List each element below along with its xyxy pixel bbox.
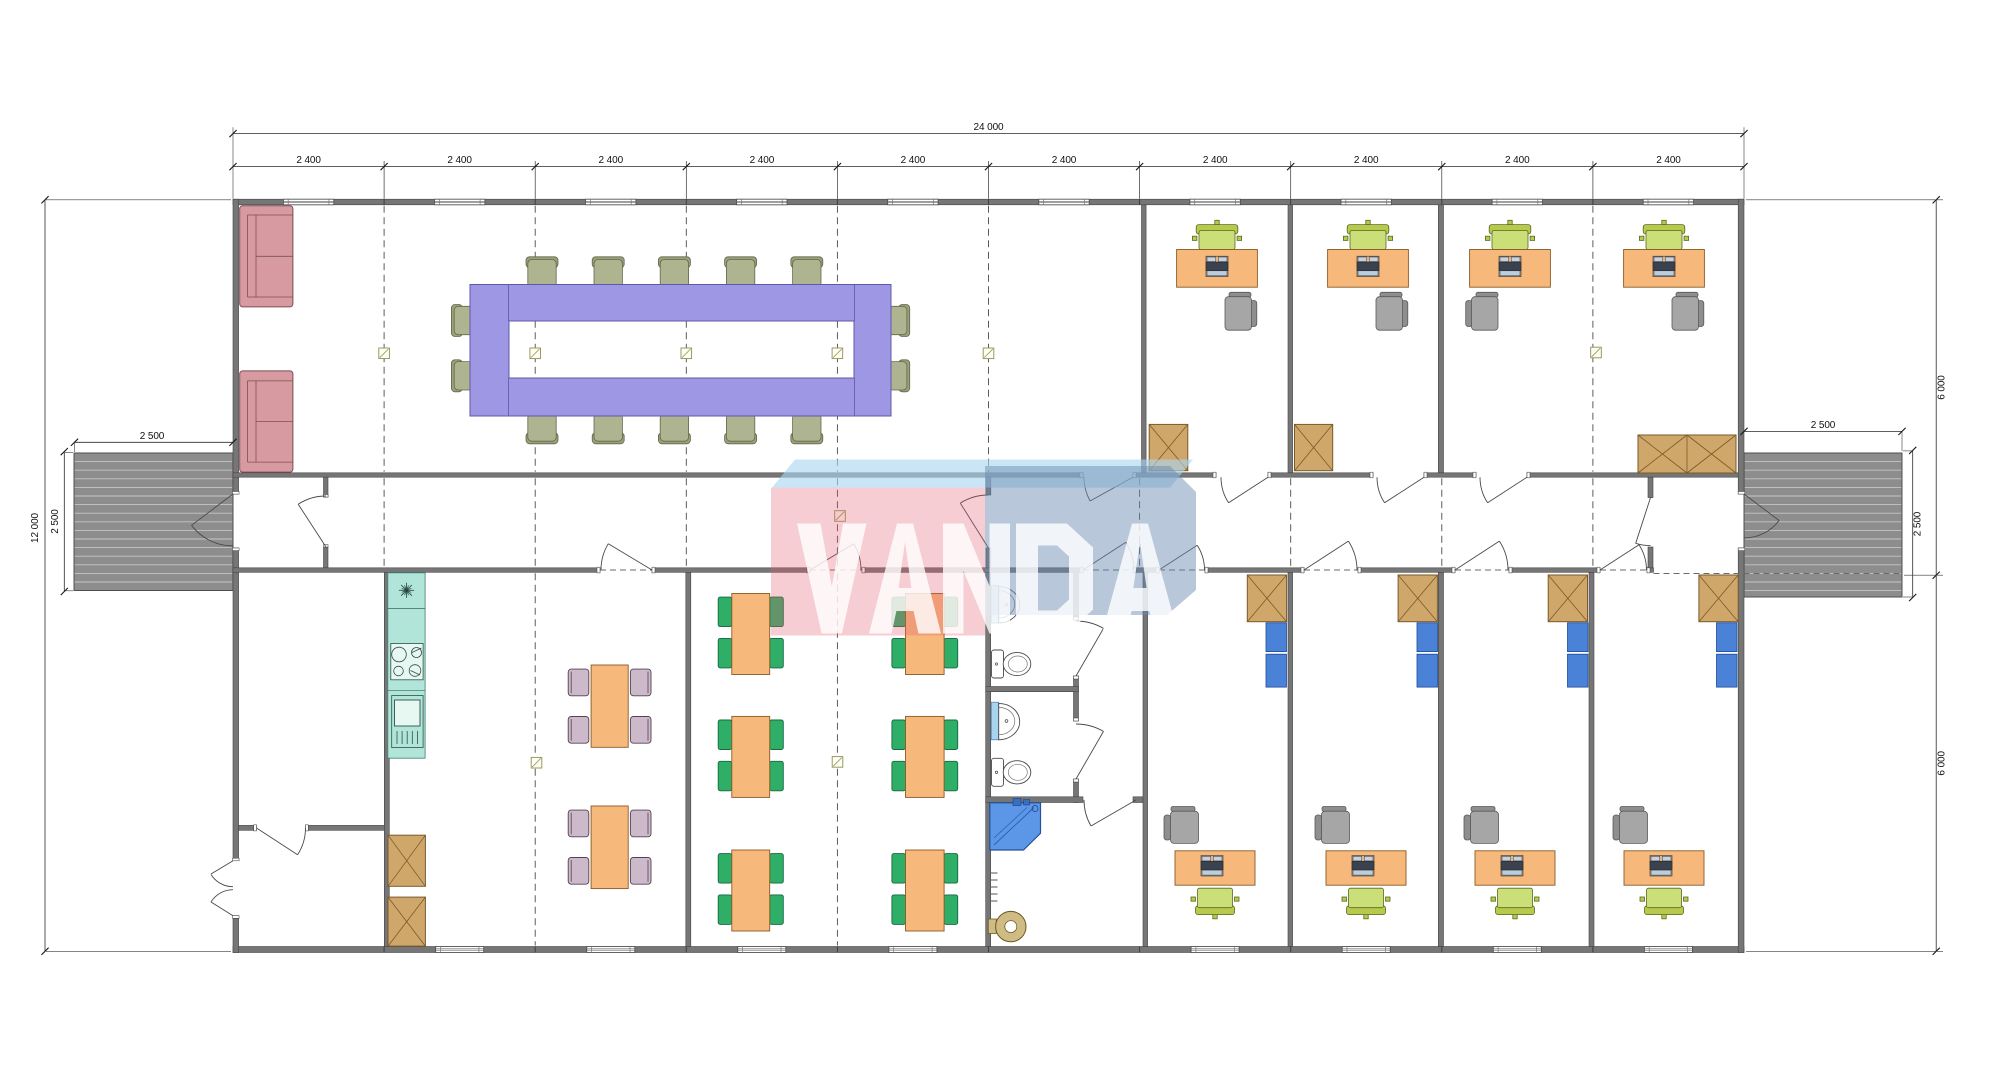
svg-text:2 400: 2 400: [1505, 155, 1530, 166]
svg-text:6 000: 6 000: [1937, 375, 1948, 400]
svg-text:2 500: 2 500: [50, 509, 61, 534]
svg-text:12 000: 12 000: [30, 512, 41, 543]
svg-text:2 500: 2 500: [140, 431, 165, 442]
svg-text:2 400: 2 400: [750, 155, 775, 166]
svg-text:2 400: 2 400: [447, 155, 472, 166]
svg-text:2 500: 2 500: [1913, 511, 1924, 536]
svg-text:2 400: 2 400: [296, 155, 321, 166]
svg-text:2 400: 2 400: [1203, 155, 1228, 166]
svg-text:2 400: 2 400: [599, 155, 624, 166]
svg-text:6 000: 6 000: [1937, 751, 1948, 776]
svg-text:2 400: 2 400: [1052, 155, 1077, 166]
svg-text:2 400: 2 400: [1656, 155, 1681, 166]
svg-text:2 400: 2 400: [901, 155, 926, 166]
svg-text:24 000: 24 000: [974, 122, 1005, 133]
svg-text:2 400: 2 400: [1354, 155, 1379, 166]
svg-text:2 500: 2 500: [1811, 420, 1836, 431]
